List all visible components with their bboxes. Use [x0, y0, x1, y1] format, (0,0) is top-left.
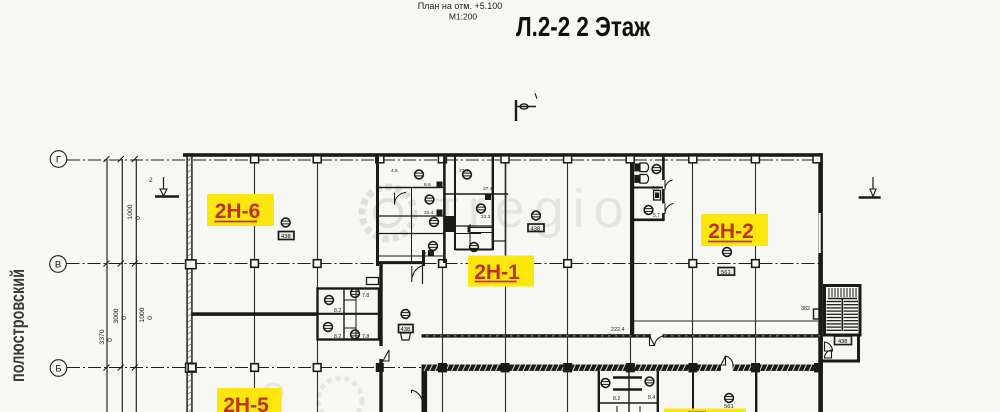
svg-text:2Н-2: 2Н-2	[708, 220, 754, 243]
svg-text:31.4: 31.4	[424, 210, 434, 216]
svg-text:3370: 3370	[99, 329, 106, 344]
svg-text:2Н-5: 2Н-5	[223, 394, 269, 412]
svg-text:0: 0	[147, 316, 154, 320]
svg-text:В: В	[55, 260, 61, 271]
svg-text:7.8: 7.8	[362, 293, 369, 299]
svg-text:3000: 3000	[113, 308, 120, 323]
svg-text:8.2: 8.2	[613, 396, 620, 402]
svg-text:7.8: 7.8	[362, 334, 369, 340]
svg-text:М1:200: М1:200	[449, 12, 478, 22]
svg-text:2Н-1: 2Н-1	[474, 261, 520, 284]
svg-text:Г: Г	[56, 155, 61, 166]
svg-text:7.8: 7.8	[424, 251, 431, 257]
svg-text:1000: 1000	[127, 204, 134, 219]
svg-text:1000: 1000	[139, 307, 146, 322]
svg-text:5.7: 5.7	[653, 213, 660, 219]
svg-text:438: 438	[401, 327, 411, 333]
svg-text:Б: Б	[55, 364, 61, 375]
svg-text:8.6: 8.6	[424, 182, 431, 188]
svg-text:8.2: 8.2	[334, 308, 341, 314]
svg-text:22.3: 22.3	[481, 214, 491, 220]
svg-text:полюстровский: полюстровский	[8, 269, 29, 382]
svg-text:438: 438	[281, 234, 291, 240]
svg-text:8.2: 8.2	[334, 334, 341, 340]
svg-text:4.5: 4.5	[391, 168, 398, 174]
svg-text:222.4: 222.4	[611, 327, 625, 333]
svg-text:2: 2	[149, 177, 153, 184]
svg-text:0: 0	[135, 216, 142, 220]
svg-text:0: 0	[121, 316, 128, 320]
svg-text:Л.2-2 2 Этаж: Л.2-2 2 Этаж	[516, 11, 651, 42]
svg-text:3.0: 3.0	[652, 186, 659, 192]
svg-text:438: 438	[531, 226, 541, 232]
svg-text:0: 0	[107, 338, 114, 342]
svg-text:561: 561	[721, 270, 731, 276]
svg-text:8.4: 8.4	[648, 395, 655, 401]
svg-text:2Н-6: 2Н-6	[215, 200, 261, 223]
svg-text:План на отм. +5.100: План на отм. +5.100	[418, 1, 503, 11]
svg-text:27.4: 27.4	[483, 186, 493, 192]
svg-text:382: 382	[801, 306, 810, 312]
svg-text:438: 438	[838, 339, 847, 345]
